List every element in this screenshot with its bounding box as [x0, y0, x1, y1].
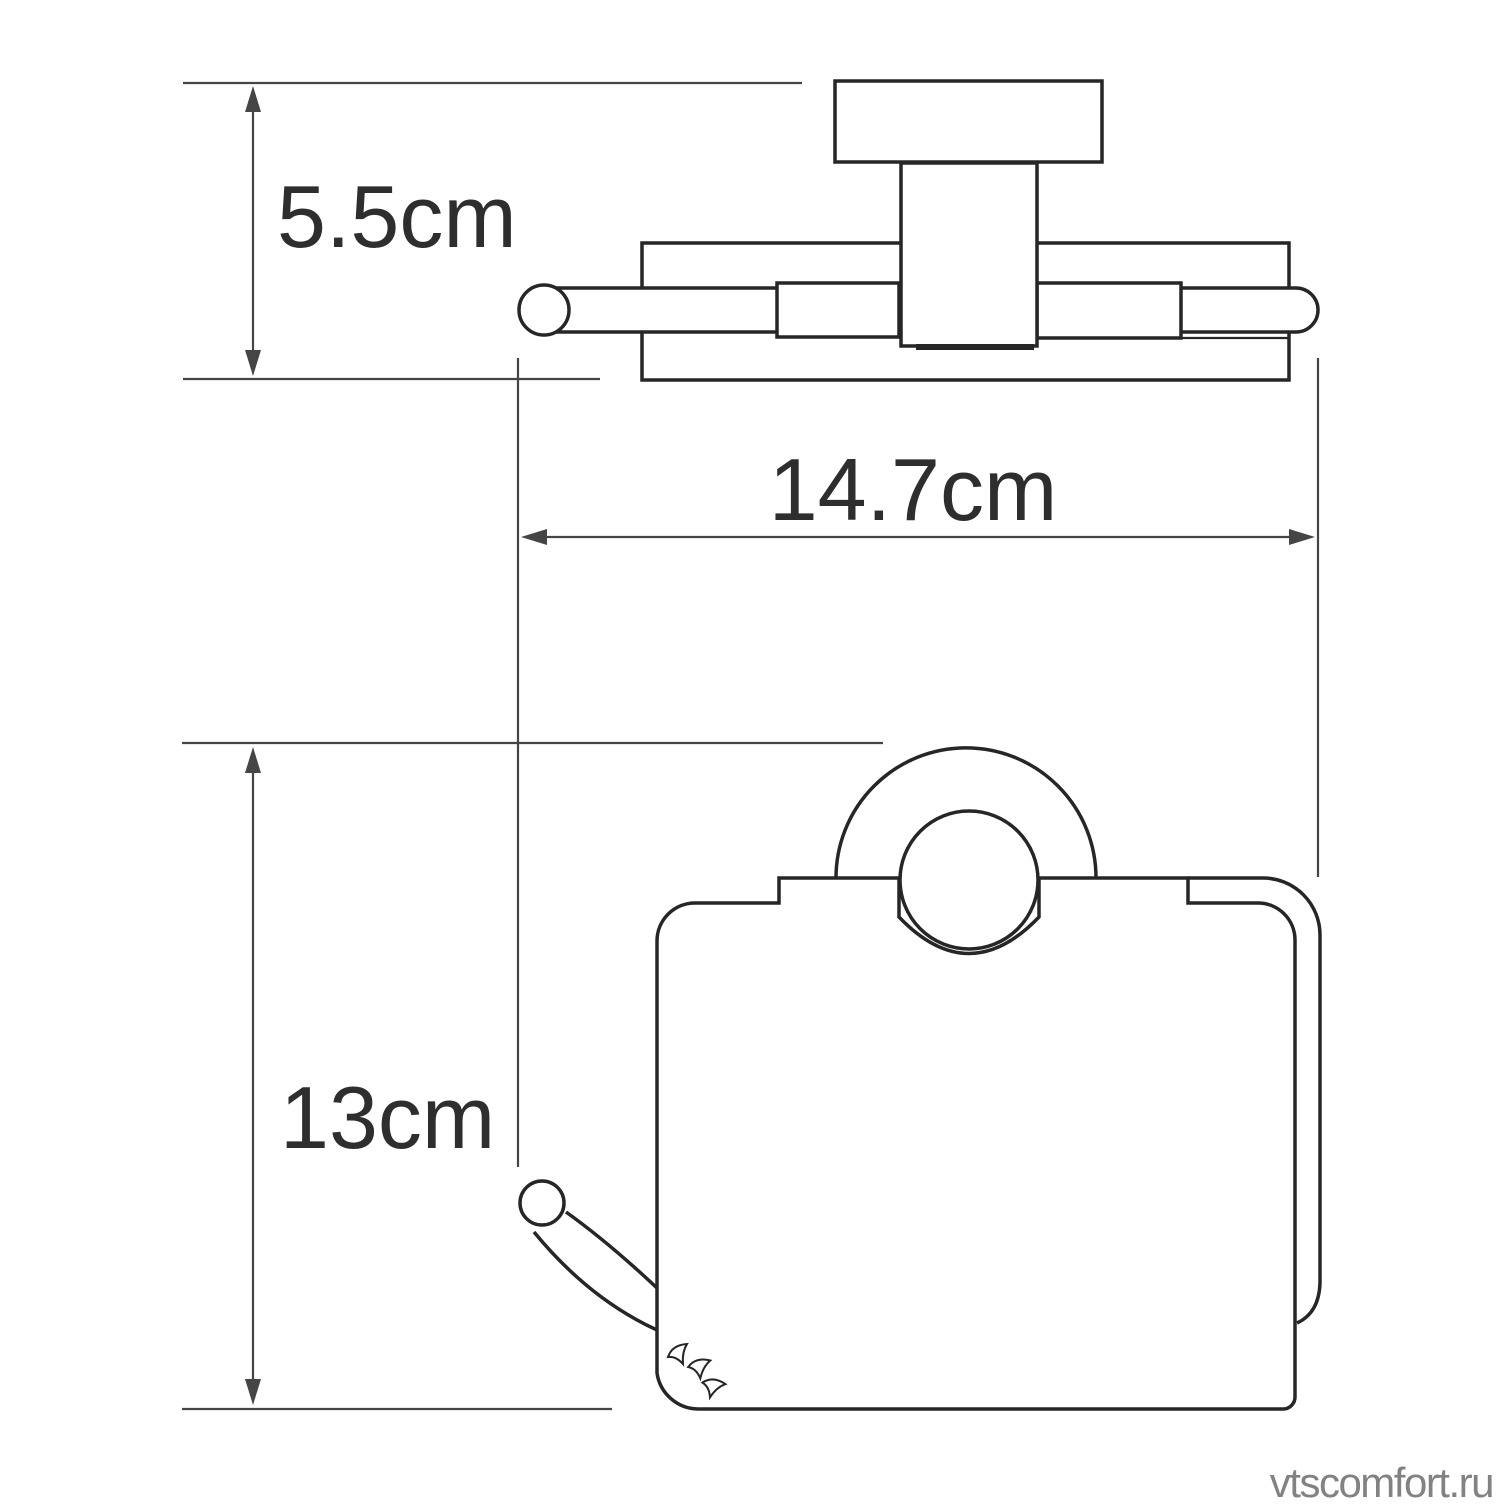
hook-arm-outer — [534, 1232, 657, 1330]
roller-sleeve-right — [1037, 283, 1181, 338]
arrowhead-down-icon — [245, 350, 261, 376]
arrowhead-left-icon — [521, 529, 547, 545]
dimension-label-depth: 5.5cm — [277, 167, 517, 266]
arrowhead-up-icon — [245, 747, 261, 773]
cover-body — [657, 878, 1295, 1409]
front-view — [520, 748, 1320, 1409]
hook-arm-inner — [566, 1212, 657, 1288]
arrowhead-up-icon — [245, 86, 261, 112]
top-view — [519, 81, 1318, 380]
roller-sleeve-left — [777, 283, 899, 337]
dimension-label-height: 13cm — [280, 1068, 495, 1167]
dimension-label-width: 14.7cm — [769, 440, 1058, 539]
watermark: vtscomfort.ru — [1270, 1459, 1493, 1504]
roller-bar-left-end — [519, 285, 569, 335]
hook-ball — [520, 1181, 564, 1225]
roller-knob — [900, 811, 1038, 949]
arrowhead-right-icon — [1289, 529, 1315, 545]
dimension-drawing-page: 5.5cm 14.7cm 13cm — [0, 0, 1503, 1504]
wall-mount-block — [835, 81, 1102, 162]
mount-stem — [901, 163, 1037, 346]
drawing-canvas: 5.5cm 14.7cm 13cm — [0, 0, 1503, 1504]
arrowhead-down-icon — [245, 1379, 261, 1405]
